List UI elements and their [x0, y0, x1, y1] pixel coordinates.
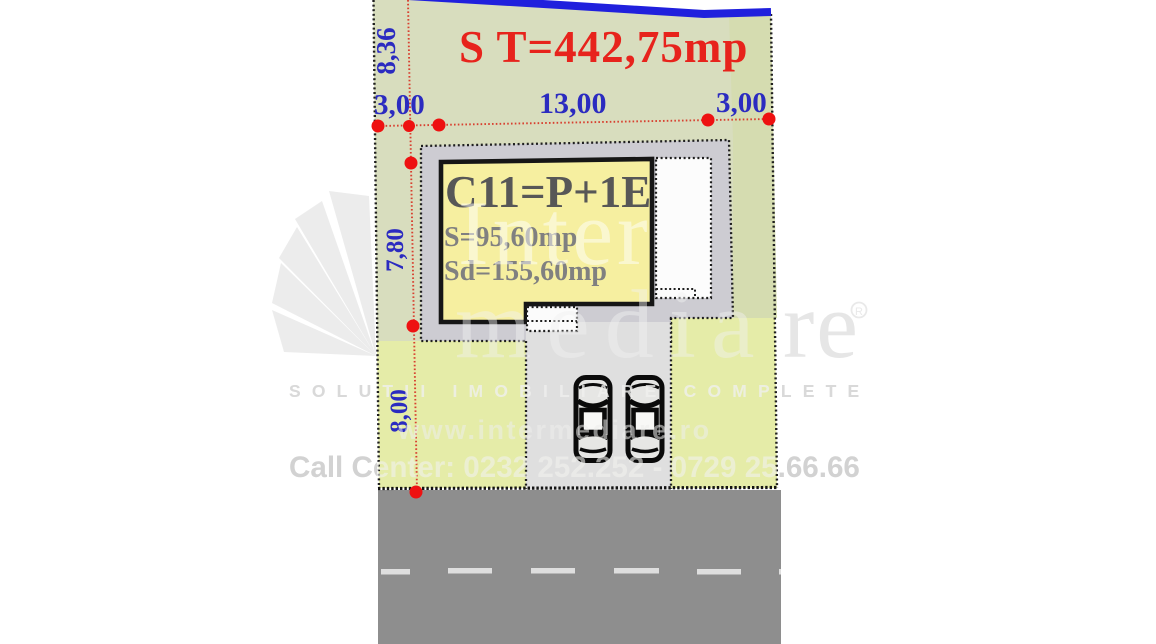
svg-text:www.intermediare.ro: www.intermediare.ro [397, 415, 712, 445]
svg-text:13,00: 13,00 [539, 87, 607, 120]
svg-text:7,80: 7,80 [382, 228, 409, 272]
svg-text:re: re [783, 274, 860, 378]
svg-text:3,00: 3,00 [716, 87, 767, 119]
svg-text:S T=442,75mp: S T=442,75mp [459, 22, 748, 72]
svg-text:8,36: 8,36 [371, 27, 401, 74]
svg-text:Inter: Inter [458, 182, 652, 284]
svg-text:3,00: 3,00 [374, 89, 425, 121]
svg-text:media: media [455, 271, 769, 379]
svg-text:R: R [855, 306, 863, 318]
